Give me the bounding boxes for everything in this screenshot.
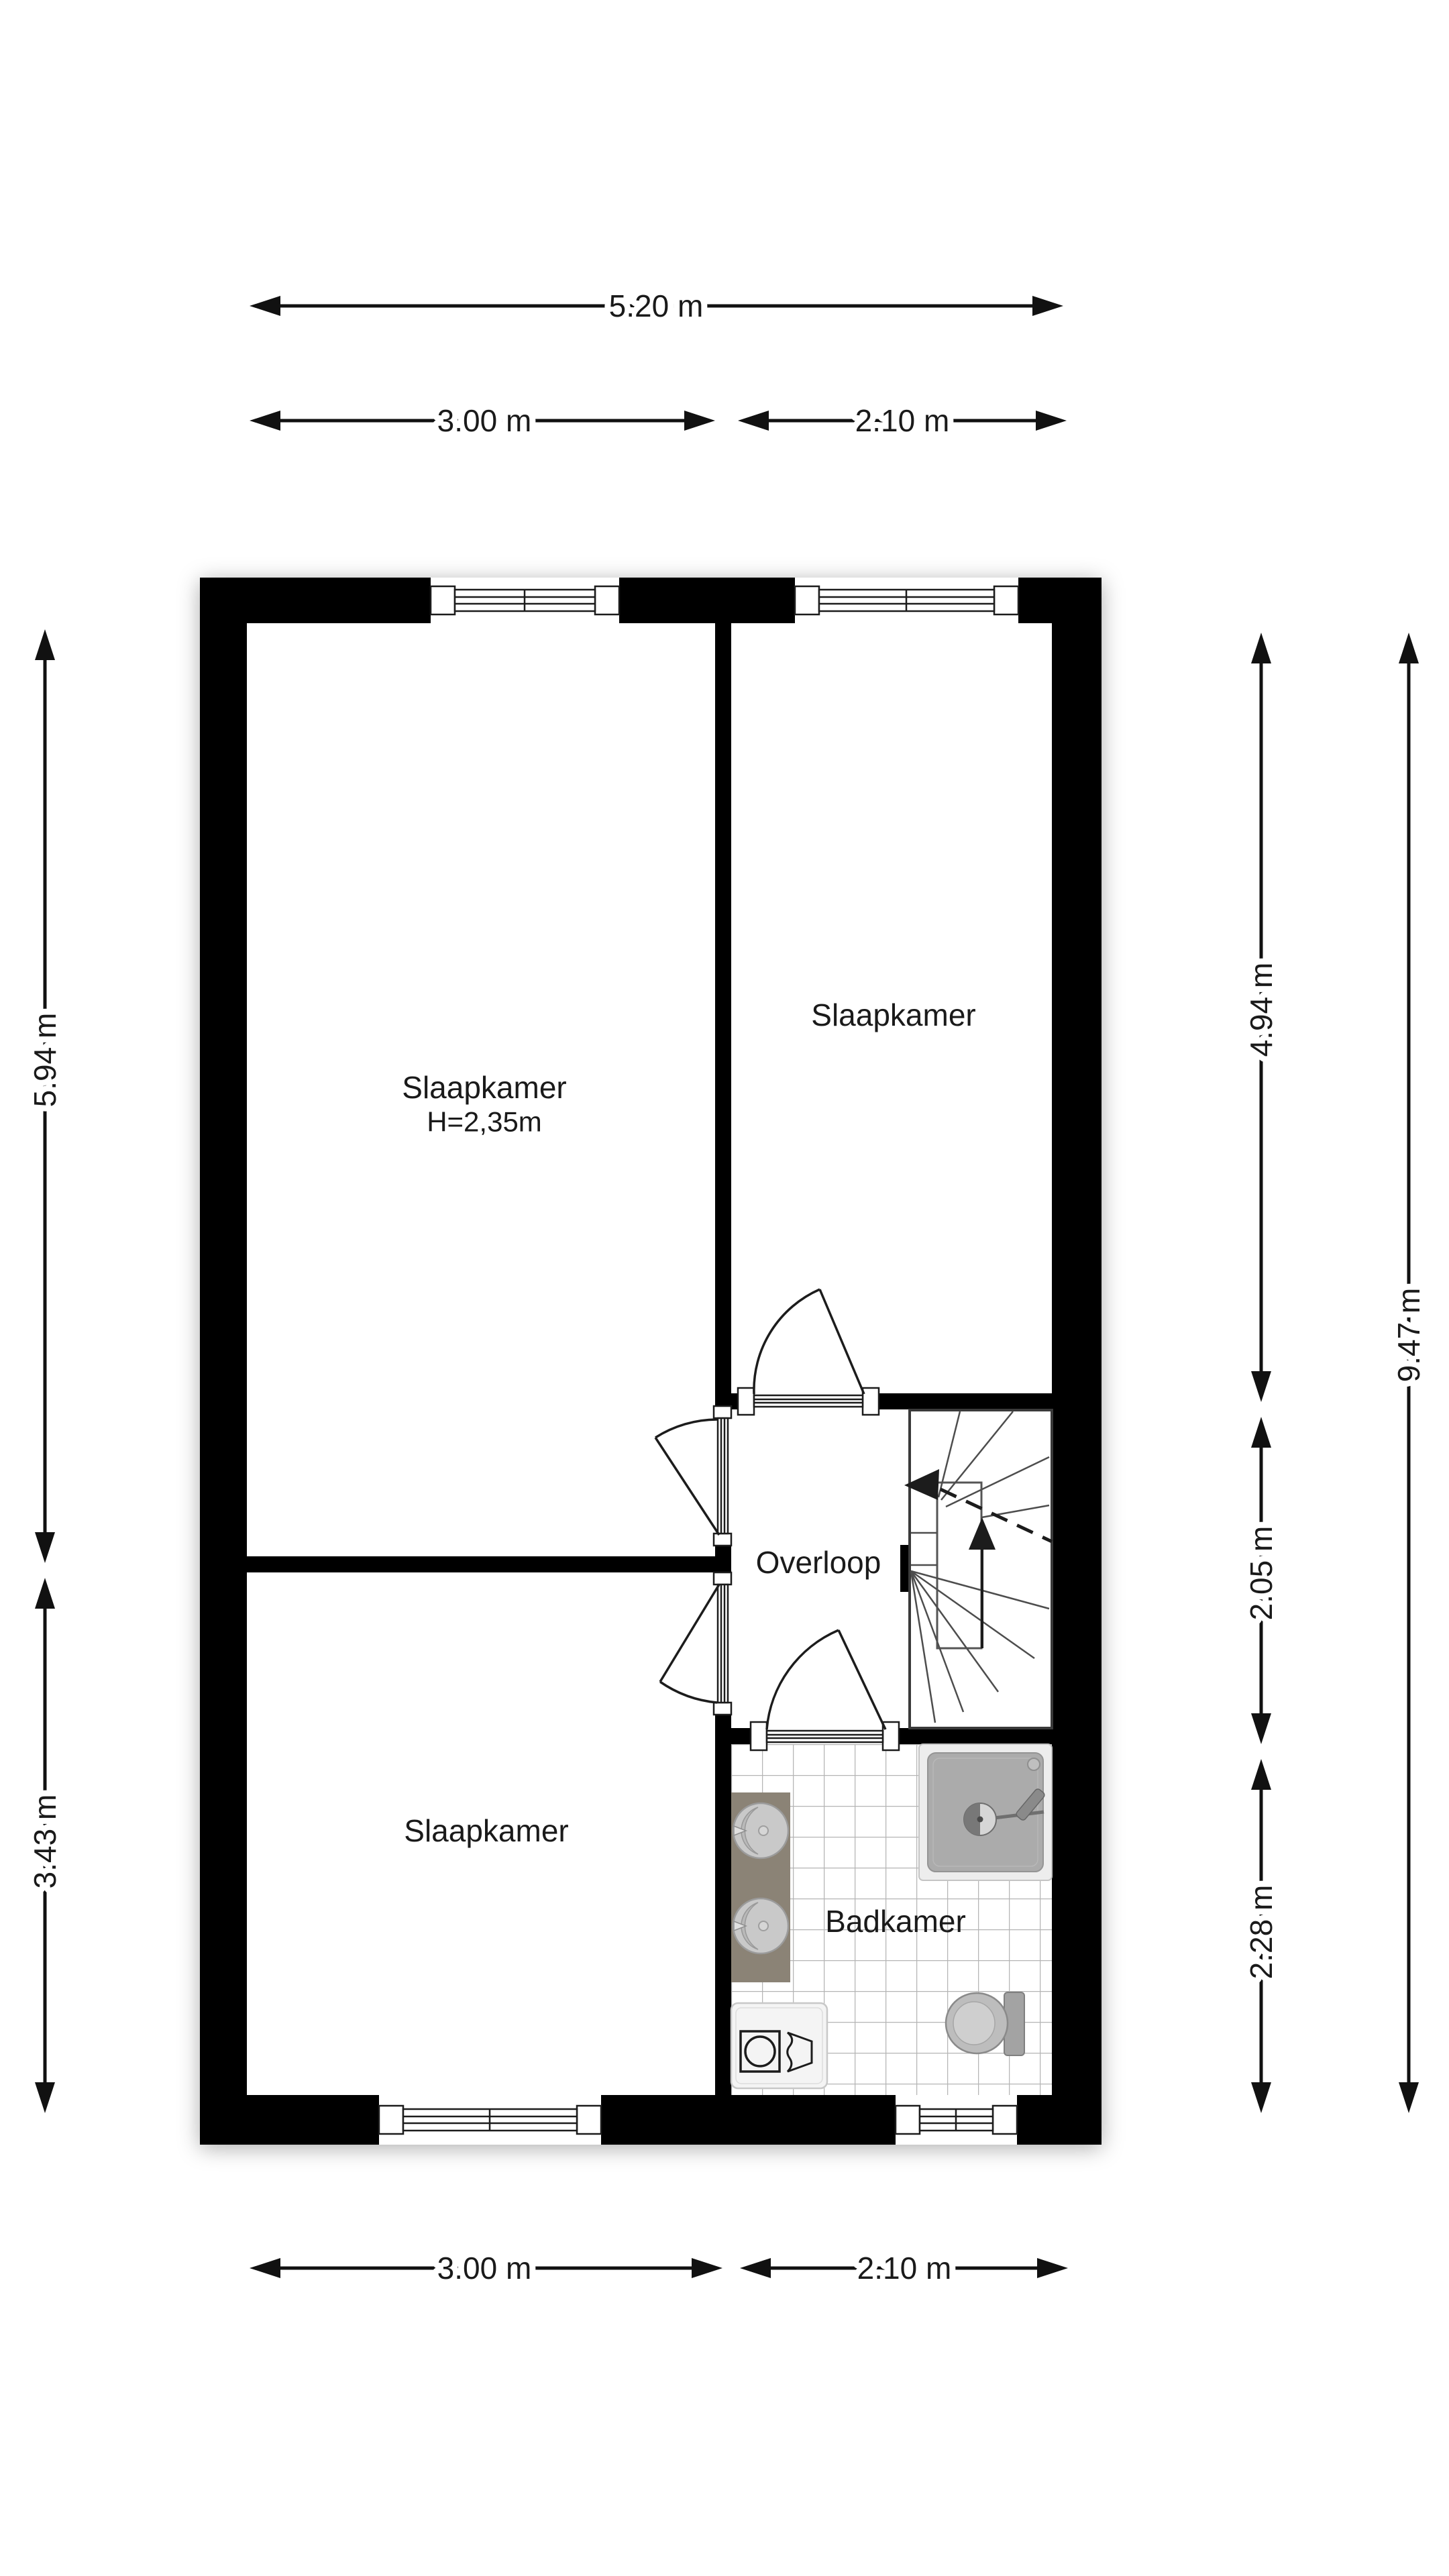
dim-right-total: 9.47 m bbox=[1391, 633, 1426, 2113]
room-label-bedroom-right: Slaapkamer bbox=[811, 998, 975, 1032]
sink-icon bbox=[733, 1898, 788, 1953]
dim-top-left: 3.00 m bbox=[250, 403, 715, 438]
svg-text:9.47 m: 9.47 m bbox=[1391, 1288, 1426, 1383]
floor-plan: Slaapkamer H=2,35m Slaapkamer Slaapkamer… bbox=[200, 578, 1102, 2145]
svg-text:2.10 m: 2.10 m bbox=[857, 2251, 952, 2286]
dim-top-right: 2.10 m bbox=[738, 403, 1067, 438]
dim-bottom-right: 2.10 m bbox=[740, 2251, 1068, 2286]
window-top-left bbox=[431, 586, 619, 614]
sink-icon bbox=[733, 1803, 788, 1858]
shower-fixture bbox=[919, 1744, 1052, 1880]
window-top-right bbox=[795, 586, 1018, 614]
svg-text:3.00 m: 3.00 m bbox=[437, 403, 532, 438]
floorplan-page: Slaapkamer H=2,35m Slaapkamer Slaapkamer… bbox=[0, 0, 1449, 2576]
dim-right-lower: 2.28 m bbox=[1244, 1759, 1279, 2113]
svg-text:3.43 m: 3.43 m bbox=[28, 1794, 62, 1889]
room-label-bathroom: Badkamer bbox=[825, 1904, 966, 1939]
svg-text:5.20 m: 5.20 m bbox=[609, 288, 704, 323]
dim-left-lower: 3.43 m bbox=[28, 1578, 62, 2113]
svg-text:2.10 m: 2.10 m bbox=[855, 403, 950, 438]
svg-text:4.94 m: 4.94 m bbox=[1244, 963, 1279, 1057]
dim-left-upper: 5.94 m bbox=[28, 629, 62, 1563]
vanity-with-sinks bbox=[731, 1792, 790, 1982]
shower-head-icon bbox=[964, 1803, 996, 1835]
window-bathroom bbox=[896, 2106, 1017, 2134]
dim-right-upper: 4.94 m bbox=[1244, 633, 1279, 1402]
washing-machine-icon bbox=[731, 2003, 827, 2088]
floorplan-canvas: Slaapkamer H=2,35m Slaapkamer Slaapkamer… bbox=[0, 0, 1449, 2576]
svg-text:5.94 m: 5.94 m bbox=[28, 1013, 62, 1108]
dim-right-middle: 2.05 m bbox=[1244, 1417, 1279, 1744]
svg-text:3.00 m: 3.00 m bbox=[437, 2251, 532, 2286]
window-bottom-left bbox=[379, 2106, 601, 2134]
room-label-bedroom-main: Slaapkamer bbox=[402, 1070, 566, 1105]
room-note-ceiling-height: H=2,35m bbox=[427, 1106, 542, 1138]
room-label-bedroom-lower: Slaapkamer bbox=[404, 1813, 568, 1848]
dim-top-total: 5.20 m bbox=[250, 288, 1063, 323]
toilet-fixture bbox=[946, 1992, 1024, 2055]
staircase bbox=[904, 1410, 1052, 1728]
dim-bottom-left: 3.00 m bbox=[250, 2251, 722, 2286]
svg-text:2.28 m: 2.28 m bbox=[1244, 1885, 1279, 1980]
shower-drain-icon bbox=[1028, 1758, 1040, 1770]
svg-text:2.05 m: 2.05 m bbox=[1244, 1526, 1279, 1621]
room-label-landing: Overloop bbox=[756, 1545, 881, 1580]
